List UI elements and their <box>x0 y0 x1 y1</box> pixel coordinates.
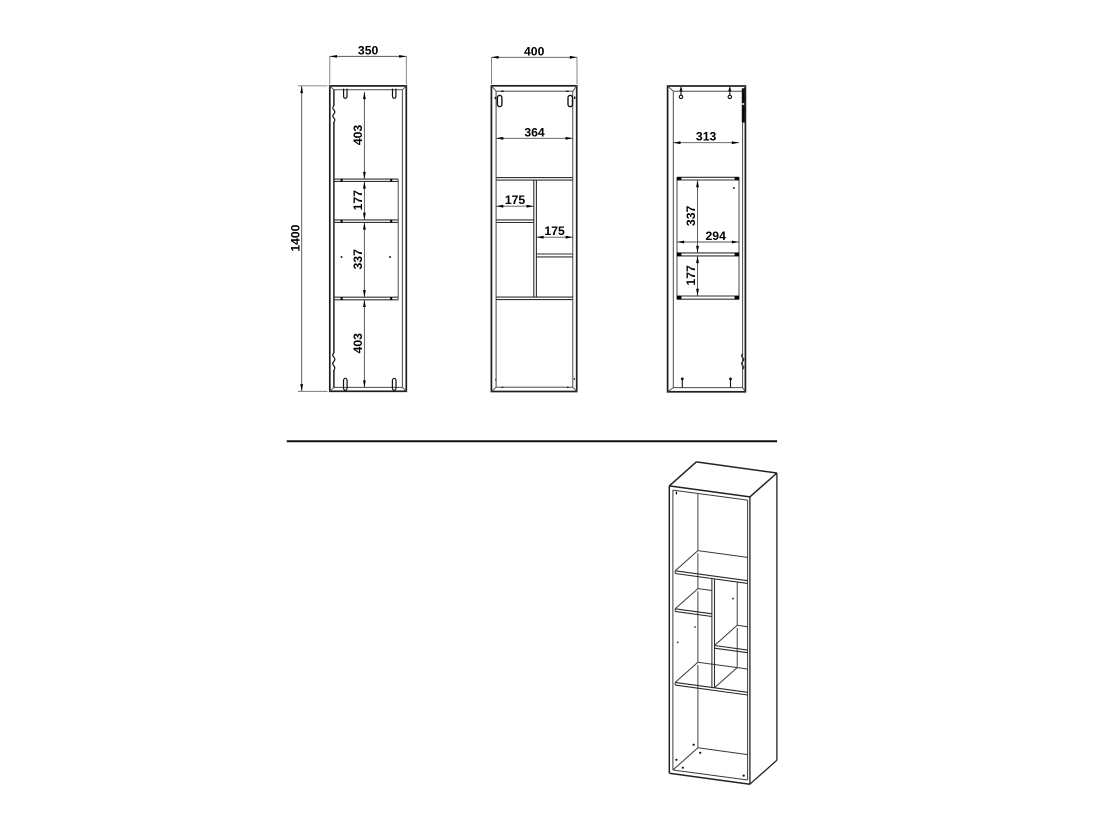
svg-text:175: 175 <box>505 193 526 207</box>
svg-text:337: 337 <box>684 206 698 227</box>
svg-text:403: 403 <box>351 333 365 354</box>
svg-text:175: 175 <box>544 224 565 238</box>
svg-text:337: 337 <box>351 249 365 270</box>
svg-text:403: 403 <box>351 125 365 146</box>
svg-text:294: 294 <box>706 229 727 243</box>
svg-text:400: 400 <box>524 44 545 58</box>
svg-text:313: 313 <box>696 130 717 144</box>
svg-text:177: 177 <box>684 265 698 286</box>
svg-text:364: 364 <box>524 125 545 139</box>
svg-text:177: 177 <box>351 190 365 211</box>
svg-text:1400: 1400 <box>288 224 302 251</box>
svg-text:350: 350 <box>358 43 379 57</box>
